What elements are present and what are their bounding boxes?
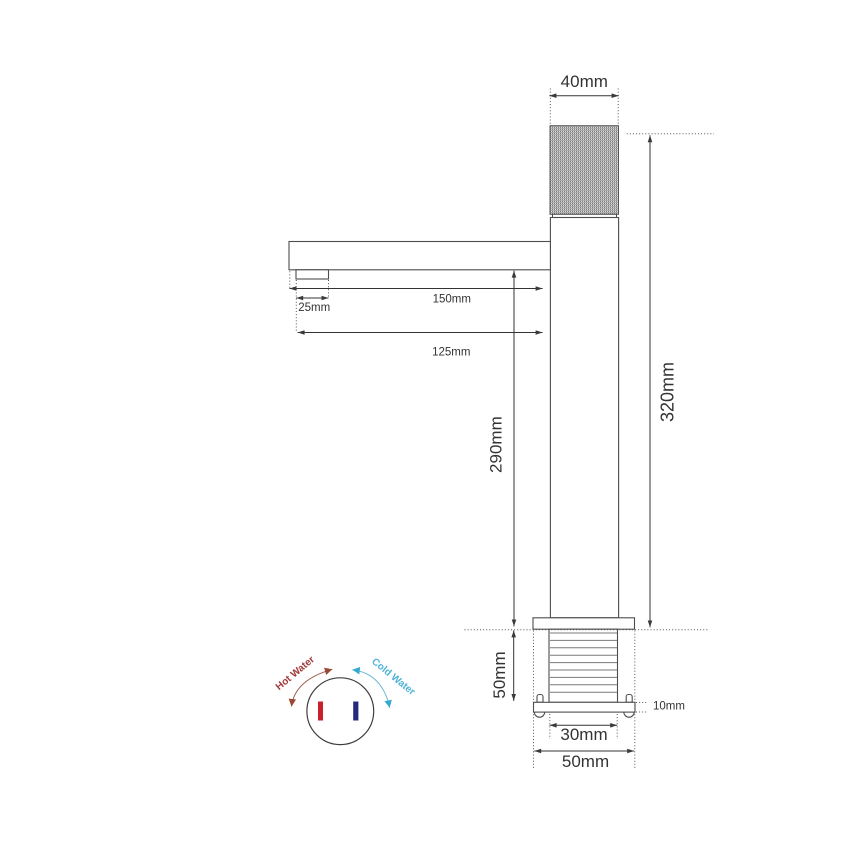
svg-text:50mm: 50mm — [490, 651, 509, 698]
svg-text:10mm: 10mm — [653, 700, 685, 712]
svg-text:50mm: 50mm — [562, 752, 609, 771]
svg-text:125mm: 125mm — [432, 347, 470, 359]
svg-text:25mm: 25mm — [298, 302, 330, 314]
svg-text:150mm: 150mm — [433, 294, 471, 306]
svg-text:30mm: 30mm — [560, 725, 607, 744]
svg-text:40mm: 40mm — [561, 72, 608, 91]
svg-text:290mm: 290mm — [487, 416, 506, 473]
svg-text:320mm: 320mm — [658, 362, 678, 422]
